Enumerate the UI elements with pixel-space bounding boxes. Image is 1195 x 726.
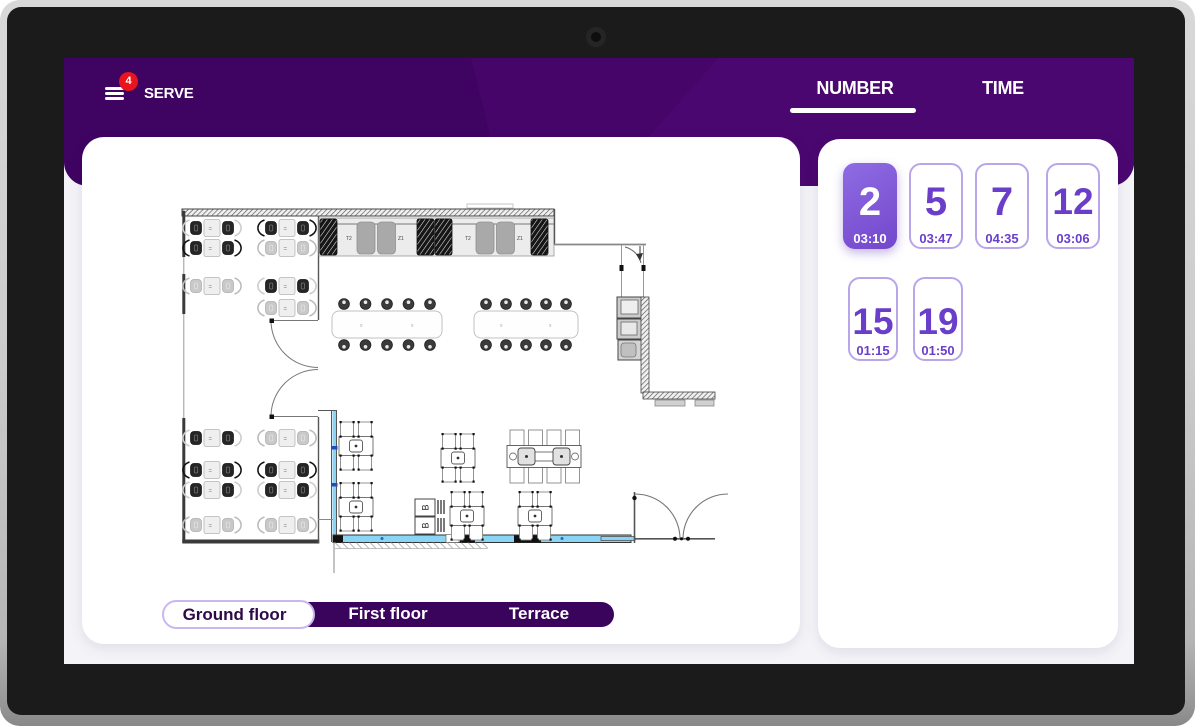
svg-text:Z1: Z1 xyxy=(398,236,404,242)
svg-text:=: = xyxy=(284,227,288,233)
svg-text:=: = xyxy=(209,285,213,291)
svg-text:=: = xyxy=(209,489,213,495)
svg-text:B: B xyxy=(421,522,431,528)
svg-text:=: = xyxy=(284,285,288,291)
svg-text:=: = xyxy=(284,489,288,495)
svg-text:=: = xyxy=(209,247,213,253)
svg-text:=: = xyxy=(284,437,288,443)
svg-text:=: = xyxy=(209,227,213,233)
svg-text:Z1: Z1 xyxy=(517,236,523,242)
svg-text:T2: T2 xyxy=(465,236,471,242)
svg-text:=: = xyxy=(284,524,288,530)
svg-text:=: = xyxy=(284,247,288,253)
svg-text:T2: T2 xyxy=(346,236,352,242)
svg-text:=: = xyxy=(209,524,213,530)
svg-text:B: B xyxy=(421,504,431,510)
svg-text:=: = xyxy=(284,469,288,475)
svg-text:=: = xyxy=(284,307,288,313)
svg-text:=: = xyxy=(209,437,213,443)
svg-text:=: = xyxy=(209,469,213,475)
